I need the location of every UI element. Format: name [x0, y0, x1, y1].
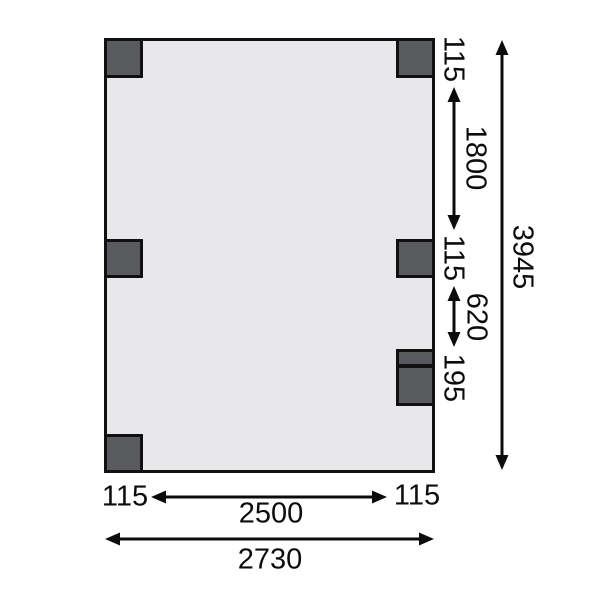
dim-label-bay-lower: 620	[462, 293, 491, 341]
dim-label-span-inner: 2500	[239, 500, 304, 529]
dim-label-offset-left: 115	[102, 483, 148, 512]
plan-diagram: 115 1800 115 620 195 3945 115 2500 115 2…	[0, 0, 600, 600]
dim-label-post-double: 195	[439, 354, 468, 402]
dim-label-offset-right: 115	[394, 482, 440, 511]
dim-label-bay-upper: 1800	[461, 126, 490, 191]
dim-label-total-depth: 3945	[508, 225, 537, 290]
dim-label-post-top: 115	[439, 36, 468, 82]
dim-label-total-width: 2730	[238, 546, 303, 575]
dim-label-post-mid: 115	[439, 235, 468, 281]
dim-arrow-bay-lower-620	[448, 286, 461, 347]
